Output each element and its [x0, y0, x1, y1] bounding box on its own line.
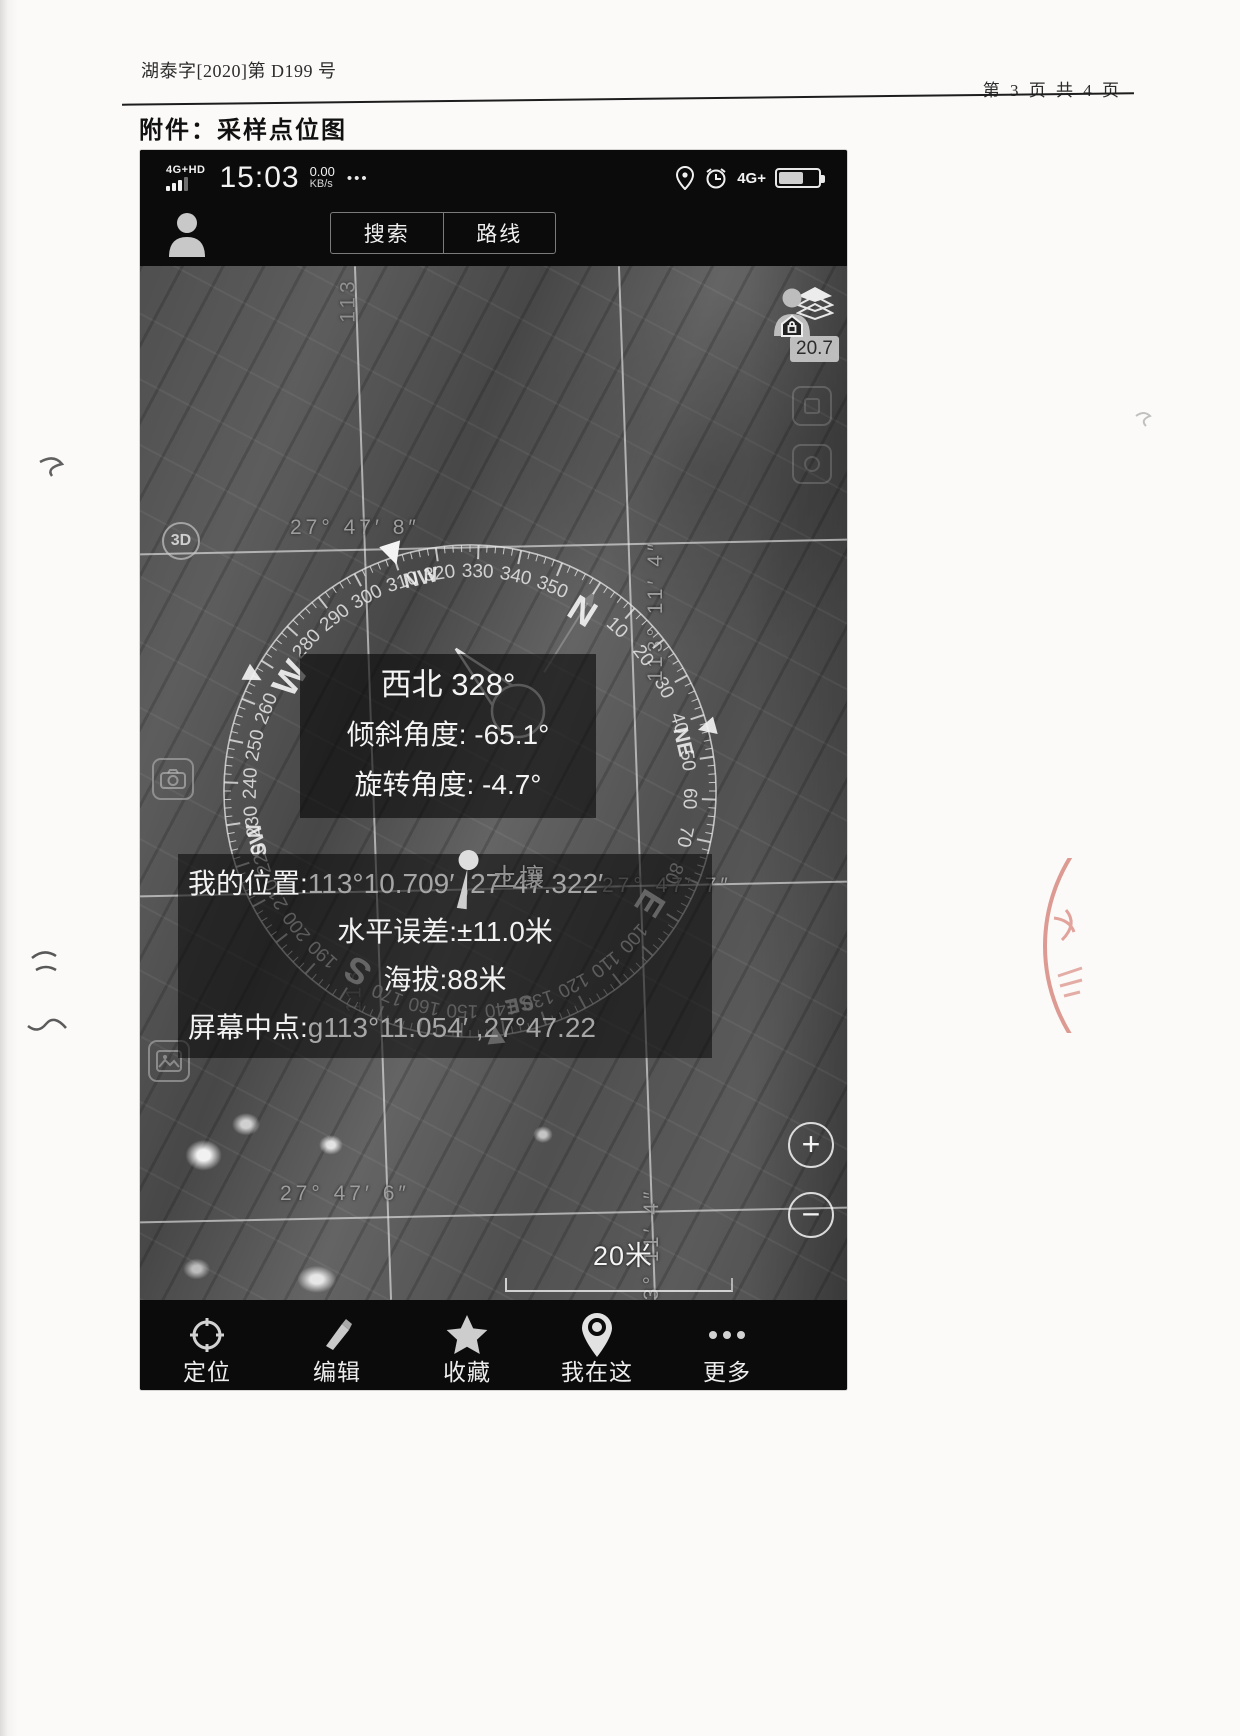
network-type-badge: 4G+ — [737, 170, 766, 187]
nav-bar: 搜索 路线 — [140, 202, 847, 266]
screen-center-row: 屏幕中点:g113°11.054′ ,27°47.22 — [188, 1004, 702, 1052]
pencil-icon — [318, 1312, 356, 1358]
route-tab[interactable]: 路线 — [444, 213, 556, 253]
home-lock-person-icon[interactable] — [769, 286, 815, 340]
star-icon — [445, 1312, 489, 1358]
status-bar: 4G+HD 15:03 0.00 KB/s ••• 4G+ — [140, 150, 847, 202]
altitude-row: 海拔:88米 — [188, 956, 702, 1004]
phone-screenshot: 4G+HD 15:03 0.00 KB/s ••• 4G+ — [140, 150, 847, 1390]
svg-text:340: 340 — [498, 563, 533, 590]
search-route-segmented-control: 搜索 路线 — [330, 212, 556, 254]
toolbar-item-locate[interactable]: 定位 — [150, 1306, 264, 1386]
zoom-in-button[interactable]: + — [788, 1122, 834, 1168]
grid-label-lon-top-partial: 113 — [337, 277, 361, 322]
svg-text:250: 250 — [242, 728, 269, 763]
camera-icon[interactable] — [152, 758, 194, 800]
map-tool-button-1[interactable] — [792, 386, 832, 426]
toolbar-item-favorite[interactable]: 收藏 — [410, 1306, 524, 1386]
map-canvas[interactable]: 27° 47′ 8″ 27° 47′ 6″ 27° 47′ 7″ 113° 11… — [140, 266, 847, 1300]
toolbar-item-im-here[interactable]: 我在这 — [540, 1306, 654, 1386]
pin-label: 土壤 — [492, 858, 546, 894]
svg-text:240: 240 — [240, 767, 262, 799]
svg-text:290: 290 — [316, 600, 354, 636]
map-tool-button-2[interactable] — [792, 444, 832, 484]
heading-text: 西北 328° — [300, 660, 596, 710]
location-pin-icon — [675, 166, 695, 190]
grid-line-horizontal — [140, 1207, 847, 1223]
grid-label-lat-bottom: 27° 47′ 6″ — [280, 1182, 410, 1206]
page-indicator: 第 3 页 共 4 页 — [983, 76, 1122, 101]
map-scale-label: 20米 — [593, 1234, 653, 1273]
svg-text:330: 330 — [461, 561, 493, 583]
compass-readout-overlay: 西北 328° 倾斜角度: -65.1° 旋转角度: -4.7° — [300, 654, 596, 818]
alarm-clock-icon — [704, 166, 728, 190]
search-tab[interactable]: 搜索 — [331, 213, 444, 253]
contact-person-icon[interactable] — [166, 210, 208, 258]
battery-icon — [775, 168, 821, 188]
locate-icon — [187, 1312, 227, 1358]
tilt-angle-text: 倾斜角度: -65.1° — [300, 710, 596, 760]
svg-text:70: 70 — [672, 824, 697, 849]
3d-view-button[interactable]: 3D — [162, 522, 200, 560]
svg-text:260: 260 — [251, 690, 282, 727]
svg-text:NE: NE — [668, 725, 697, 759]
svg-text:NW: NW — [401, 563, 440, 593]
my-location-row: 我的位置:113°10.709′ ,27°47.322′ — [188, 860, 702, 908]
pin-icon — [580, 1312, 614, 1358]
rotation-angle-text: 旋转角度: -4.7° — [300, 760, 596, 810]
svg-text:350: 350 — [534, 572, 571, 603]
network-speed: 0.00 KB/s — [310, 166, 335, 190]
svg-text:30: 30 — [650, 674, 678, 703]
toolbar-item-more[interactable]: 更多 — [670, 1306, 784, 1386]
svg-text:20: 20 — [628, 641, 658, 671]
zoom-out-button[interactable]: − — [788, 1192, 834, 1238]
signal-strength-icon: 4G+HD — [166, 165, 206, 191]
horizontal-error-row: 水平误差:±11.0米 — [188, 908, 702, 956]
toolbar-item-edit[interactable]: 编辑 — [280, 1306, 394, 1386]
scanned-document-page: 湖泰字[2020]第 D199 号 第 3 页 共 4 页 附件：采样点位图 4… — [0, 0, 1240, 1736]
svg-text:60: 60 — [679, 788, 701, 810]
attachment-title: 附件：采样点位图 — [139, 110, 347, 145]
document-number: 湖泰字[2020]第 D199 号 — [141, 57, 337, 83]
more-dots-icon — [705, 1312, 749, 1358]
map-scale-bar — [505, 1278, 733, 1292]
clock-time: 15:03 — [220, 161, 300, 195]
location-info-overlay: 我的位置:113°10.709′ ,27°47.322′ 水平误差:±11.0米… — [178, 854, 712, 1058]
sample-point-pin-icon[interactable] — [446, 844, 490, 920]
bottom-toolbar: 定位 编辑 收藏 我在这 — [140, 1300, 847, 1390]
network-badge: 4G+HD — [166, 165, 206, 175]
svg-text:300: 300 — [348, 580, 386, 613]
notification-dots: ••• — [347, 170, 369, 187]
red-stamp — [1008, 858, 1140, 1033]
